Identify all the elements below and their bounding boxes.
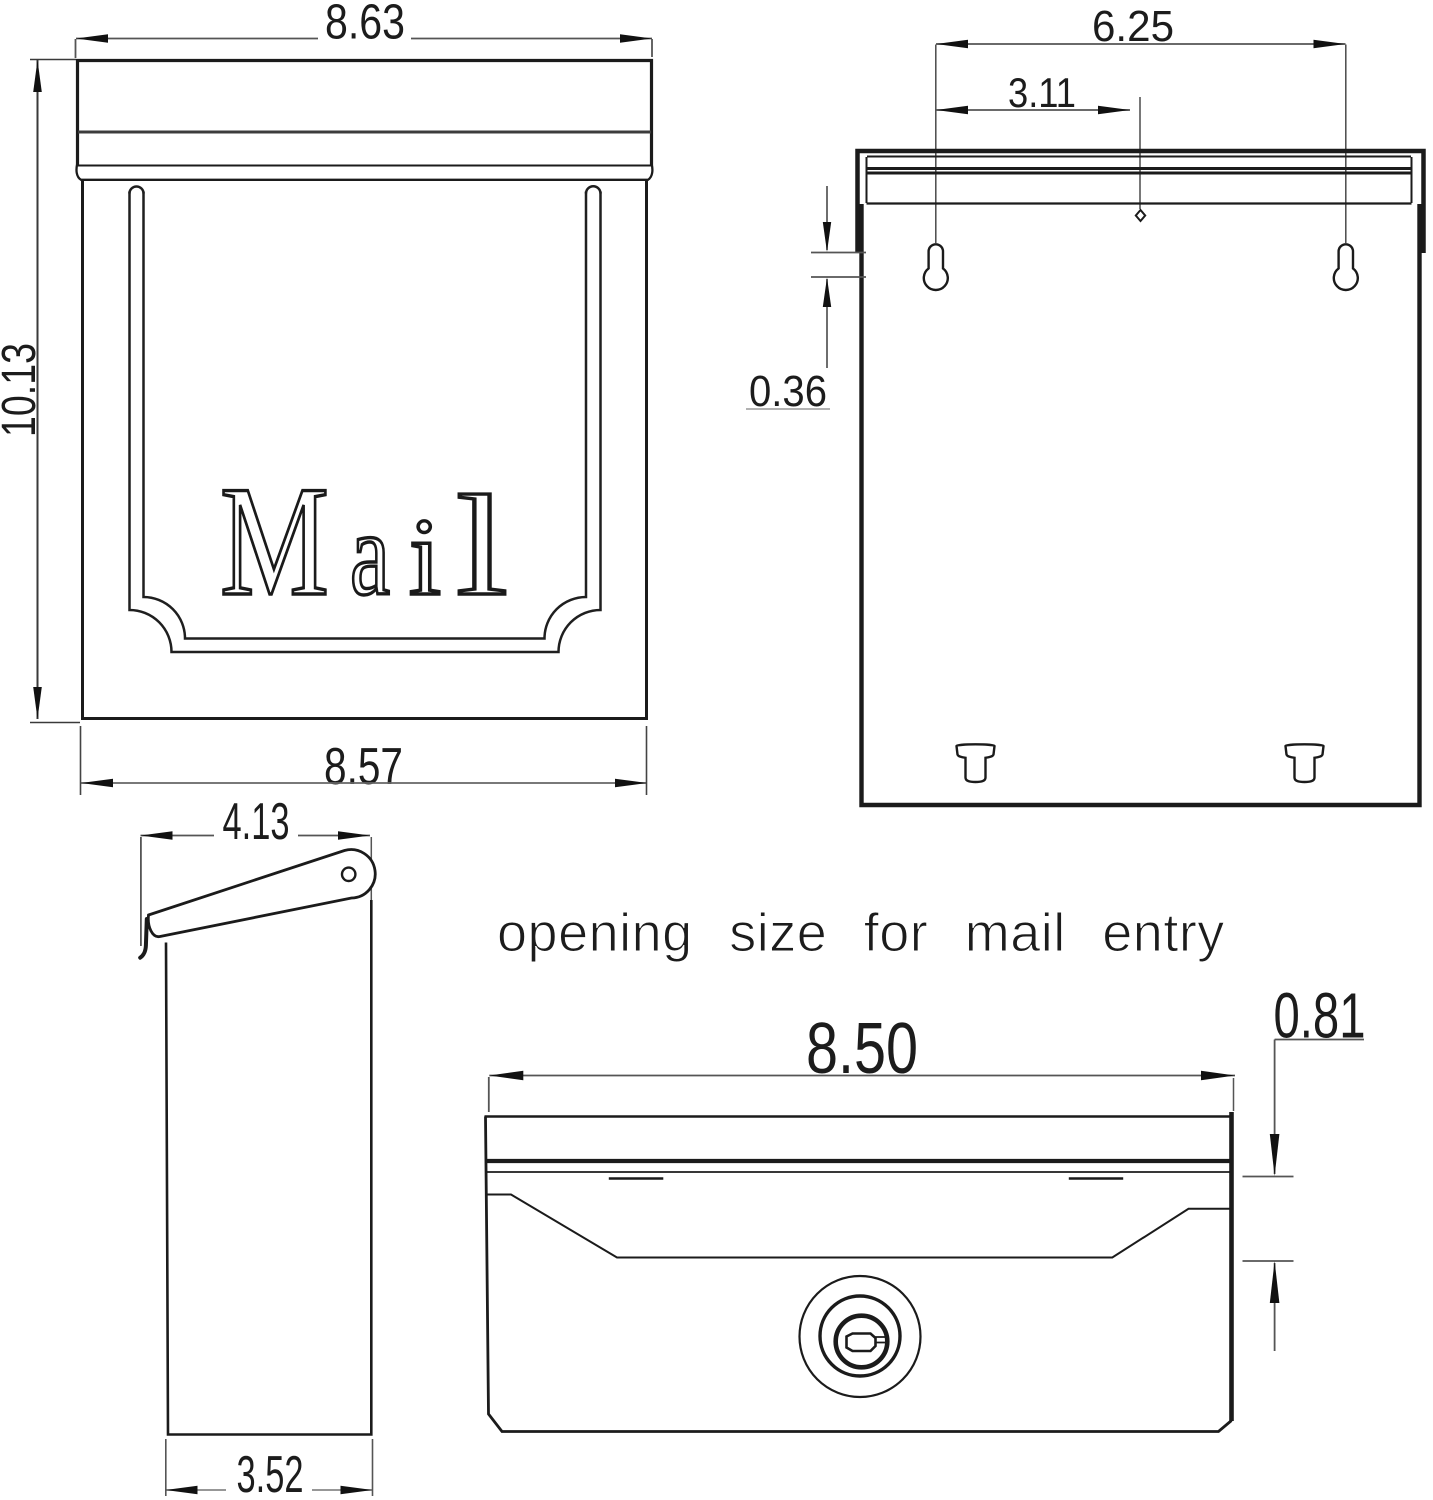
- svg-text:3.52: 3.52: [237, 1446, 304, 1500]
- svg-text:l: l: [456, 467, 508, 626]
- svg-text:0.81: 0.81: [1274, 980, 1366, 1052]
- svg-text:i: i: [409, 496, 441, 618]
- svg-text:8.50: 8.50: [806, 1009, 918, 1089]
- svg-text:8.63: 8.63: [325, 0, 405, 50]
- svg-text:8.57: 8.57: [324, 738, 403, 796]
- svg-text:opening size for mail entry: opening size for mail entry: [497, 903, 1225, 963]
- svg-text:M: M: [220, 454, 329, 629]
- svg-text:4.13: 4.13: [223, 793, 290, 851]
- svg-text:a: a: [350, 487, 390, 620]
- svg-text:3.11: 3.11: [1008, 69, 1076, 116]
- svg-text:10.13: 10.13: [0, 343, 46, 437]
